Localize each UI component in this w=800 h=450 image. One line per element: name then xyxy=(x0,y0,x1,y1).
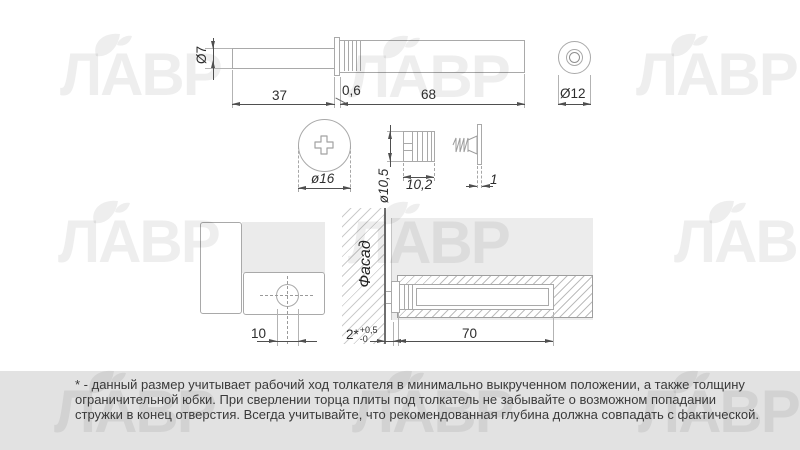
dim-drill-depth: 70 xyxy=(462,327,477,341)
dim-hole-diameter: 10 xyxy=(251,327,266,341)
centerline xyxy=(287,276,288,344)
dim-sleeve-length: 10,2 xyxy=(406,178,432,192)
dimension-arrow xyxy=(517,102,525,106)
extension-line xyxy=(590,75,591,105)
dimension-arrow xyxy=(377,339,385,343)
dim-rod-diameter: Ø7 xyxy=(195,46,209,64)
gap-value: 2* xyxy=(346,328,359,342)
body-rib xyxy=(360,41,361,71)
facade-surface-line xyxy=(384,208,386,344)
dim-cap-diameter: ø16 xyxy=(311,172,334,186)
plunger-body xyxy=(339,40,525,73)
sleeve-rib xyxy=(417,132,418,161)
dimension-line xyxy=(257,341,317,342)
washer-plate xyxy=(477,124,482,165)
technical-drawing: ЛАВР ЛАВР ЛАВР ЛАВР ЛАВР ЛАВР ЛАВР ЛАВР … xyxy=(0,0,800,450)
sleeve-slot xyxy=(403,143,412,144)
dimension-line xyxy=(232,104,335,105)
dimension-arrow xyxy=(326,102,334,106)
extension-line xyxy=(558,75,559,105)
dimension-arrow xyxy=(469,184,477,188)
dimension-arrow xyxy=(298,186,306,190)
body-rib xyxy=(352,41,353,71)
sleeve-rib xyxy=(427,132,428,161)
dimension-arrow xyxy=(298,339,306,343)
dim-sleeve-diameter: ø10,5 xyxy=(377,169,391,204)
facade-panel-outline xyxy=(200,222,242,314)
dim-gap: 2*+0,5-0 xyxy=(346,326,378,344)
footnote-line: * - данный размер учитывает рабочий ход … xyxy=(75,377,745,392)
sleeve-slot xyxy=(403,150,412,151)
footnote-line: стружки в конец отверстия. Всегда учитыв… xyxy=(75,407,759,422)
sleeve-rib xyxy=(412,132,413,161)
carcass-panel-gray xyxy=(242,222,325,273)
phillips-cross-icon xyxy=(313,134,335,156)
latch-rib xyxy=(408,285,409,309)
watermark-logo: ЛАВР xyxy=(58,212,219,272)
extension-line xyxy=(434,163,435,181)
dimension-arrow xyxy=(211,41,215,49)
extension-line xyxy=(553,312,554,346)
dimension-line xyxy=(340,104,525,105)
dimension-arrow xyxy=(482,184,490,188)
footnote-line: ограничительной юбки. При сверлении торц… xyxy=(75,392,716,407)
plunger-rod xyxy=(232,48,336,69)
dim-rod-length: 37 xyxy=(272,89,287,103)
dimension-arrow xyxy=(388,153,392,161)
dimension-arrow xyxy=(558,102,566,106)
dim-body-length: 68 xyxy=(421,88,436,102)
latch-collar xyxy=(391,281,400,313)
dimension-arrow xyxy=(545,339,553,343)
watermark-logo: ЛАВР xyxy=(674,212,800,272)
watermark-logo: ЛАВР xyxy=(636,45,797,105)
end-view-bore xyxy=(569,52,580,63)
leaf-icon xyxy=(88,197,132,227)
body-rib xyxy=(356,41,357,71)
sleeve-rib xyxy=(422,132,423,161)
latch-rib xyxy=(412,285,413,309)
dimension-arrow xyxy=(398,339,406,343)
leaf-icon xyxy=(666,30,710,60)
extension-line xyxy=(205,48,232,49)
extension-line xyxy=(477,166,478,188)
sleeve-rib xyxy=(431,132,432,161)
leaf-icon xyxy=(704,197,748,227)
extension-line xyxy=(205,68,232,69)
facade-label: Фасад xyxy=(359,240,373,287)
leaf-icon xyxy=(90,30,134,60)
latch-rib xyxy=(404,285,405,309)
dim-end-diameter: Ø12 xyxy=(560,87,586,101)
latch-inner-outline xyxy=(416,288,549,306)
dim-washer-thickness: 1 xyxy=(490,173,498,187)
dimension-arrow xyxy=(232,102,240,106)
body-rib xyxy=(344,41,345,71)
dimension-arrow xyxy=(269,339,277,343)
dimension-arrow xyxy=(343,186,351,190)
body-rib xyxy=(348,41,349,71)
dimension-arrow xyxy=(211,60,215,68)
dim-flange-thickness: 0,6 xyxy=(342,84,361,98)
dimension-arrow xyxy=(583,102,591,106)
dimension-arrow xyxy=(388,131,392,139)
gap-tol-minus: -0 xyxy=(360,335,378,344)
